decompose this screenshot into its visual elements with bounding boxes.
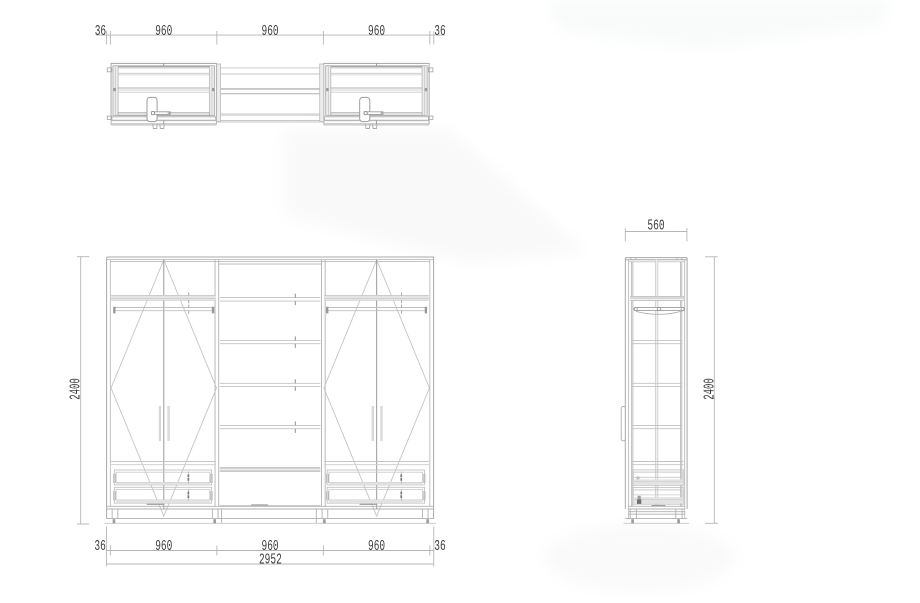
svg-text:560: 560	[647, 218, 664, 234]
svg-text:960: 960	[368, 24, 385, 40]
svg-text:960: 960	[368, 539, 385, 555]
svg-text:36: 36	[95, 24, 106, 40]
svg-text:36: 36	[434, 24, 445, 40]
svg-text:36: 36	[434, 539, 445, 555]
svg-text:960: 960	[155, 539, 172, 555]
svg-text:960: 960	[155, 24, 172, 40]
svg-text:36: 36	[94, 539, 105, 555]
svg-text:2400: 2400	[702, 378, 718, 400]
svg-text:2952: 2952	[259, 552, 282, 568]
svg-text:960: 960	[262, 24, 279, 40]
svg-text:2400: 2400	[69, 378, 85, 400]
